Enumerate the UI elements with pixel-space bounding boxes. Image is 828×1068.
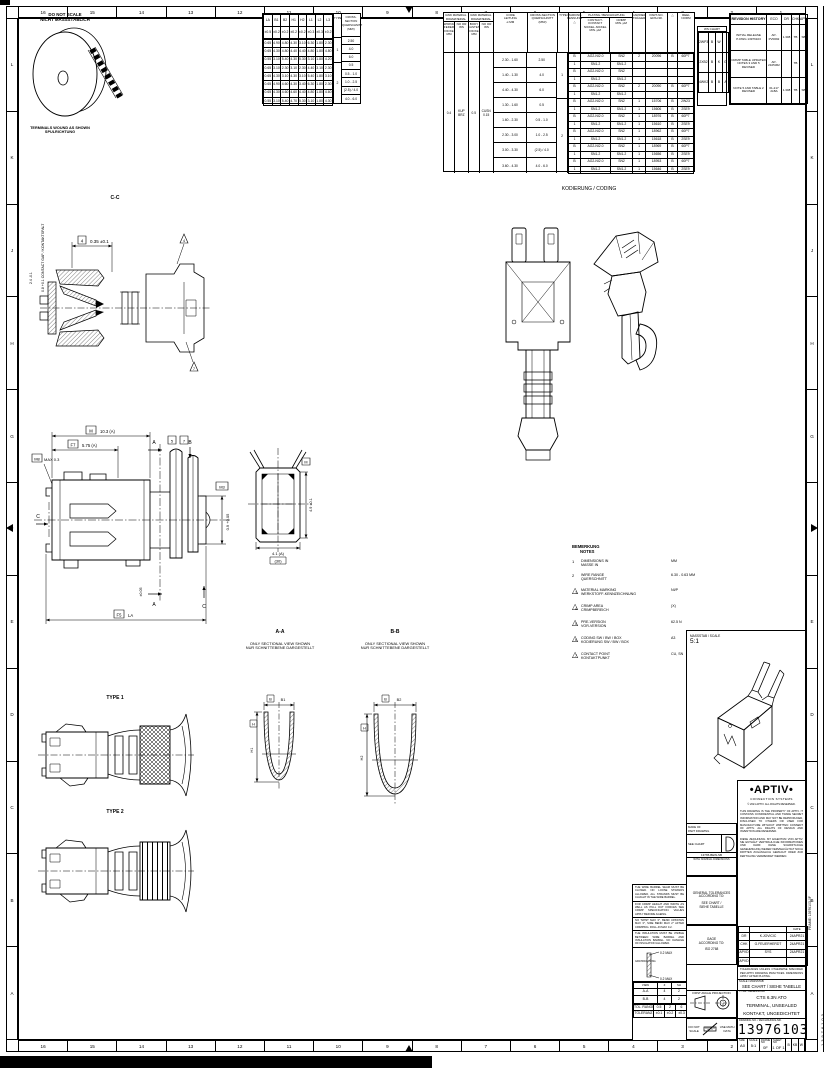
burr-sketch: 0.2 MAX 0.2 MAX bbox=[635, 949, 685, 981]
list-item: 5 bbox=[560, 1041, 609, 1051]
list-item: J bbox=[807, 205, 817, 298]
table-cell: SN1.2 bbox=[611, 61, 633, 69]
list-item: 1.0 - 2.5 bbox=[342, 78, 360, 86]
list-item: D bbox=[807, 669, 817, 762]
centering-mark-left bbox=[6, 524, 13, 532]
table-cell: 24APR21 bbox=[787, 933, 808, 941]
table-row: BAG2-NI2.0SN2220096B60P7 bbox=[569, 54, 694, 62]
table-cell: 15610 bbox=[646, 121, 668, 129]
table-row: INITIAL RELEASE P-DWG 13976103AP- PV0092… bbox=[731, 25, 808, 51]
table-cell: SN1.2 bbox=[581, 106, 611, 114]
spring-material: KUP BRZ bbox=[455, 53, 469, 173]
table-cell: AG2-NI2.0 bbox=[581, 99, 611, 107]
table-cell bbox=[678, 69, 694, 77]
table-cell: SN1.2 bbox=[581, 121, 611, 129]
table-cell: 0.65 bbox=[264, 81, 273, 89]
notes-title-en: NOTES bbox=[580, 549, 707, 554]
table-cell bbox=[646, 91, 668, 99]
table-cell: SN2 bbox=[611, 129, 633, 137]
svg-text:H1: H1 bbox=[250, 748, 254, 753]
table-row: TOLERANZ±0.1±0.2±0.3 bbox=[634, 1011, 688, 1018]
cs-values-2: 2.504.06.00.50.5 - 1.01.0 - 2.5(2.5) / 4… bbox=[527, 53, 557, 173]
list-item: 12 bbox=[216, 7, 265, 17]
dimension-table-header: LAB1B2H1H2L1L2L3±0.5±0.2±0.2±0.2±0.2±0.3… bbox=[263, 14, 333, 39]
table-cell: B bbox=[668, 166, 678, 174]
rev-col-eco: ECO bbox=[767, 15, 782, 25]
list-item: 1.30 - 1.60 bbox=[494, 98, 527, 113]
crimp-section-aa: B B1 H H1 bbox=[250, 694, 308, 802]
list-item: 4.40 - 4.30 bbox=[494, 83, 527, 98]
list-item: 10 bbox=[314, 1041, 363, 1051]
size-cell: SIZEA0 bbox=[738, 1039, 748, 1051]
reel-drawing bbox=[24, 26, 128, 124]
note-value: MM bbox=[671, 559, 677, 563]
table-row: BAG2-NI2.0SN2 bbox=[569, 69, 694, 77]
table-cell: 4.30 bbox=[289, 73, 298, 81]
table-cell: L2 bbox=[315, 15, 324, 27]
front-view: M 4.9 ±0.1 4.1 (A) (30) bbox=[246, 446, 314, 564]
table-cell: G.FEUERHERDT bbox=[750, 941, 787, 949]
table-cell: 5.30 bbox=[298, 56, 307, 64]
svg-text:5.75 (A): 5.75 (A) bbox=[82, 443, 98, 448]
note-item-1: 1 DIMENSIONS INMASSE IN MM bbox=[572, 559, 707, 568]
table-cell: SN2 bbox=[611, 54, 633, 62]
svg-text:M8: M8 bbox=[34, 457, 40, 462]
table-row: 2WP3BW bbox=[699, 33, 729, 53]
table-row: 0.654.304.804.404.404.801.804.80 bbox=[264, 48, 333, 56]
svg-text:B1: B1 bbox=[281, 698, 286, 702]
table-cell bbox=[800, 51, 808, 77]
process-note-1: THE WIRE BARREL SEAM MUST BE CLOSED. NO … bbox=[633, 885, 686, 902]
note-value: (X) bbox=[671, 604, 676, 608]
list-item: 6.0 bbox=[527, 83, 556, 98]
svg-text:±0.05: ±0.05 bbox=[139, 588, 143, 597]
table-cell: 1 bbox=[569, 91, 581, 99]
table-cell: 18969 bbox=[646, 144, 668, 152]
table-cell: 1.80 bbox=[315, 40, 324, 48]
legal-text-en: THIS DRAWING IS THE PROPERTY OF APTIV. I… bbox=[738, 809, 805, 835]
aa-note-de: NUR SCHNITTEBENE DARGESTELLT bbox=[232, 646, 328, 650]
section-aa-note: ONLY SECTIONAL VIEW SHOWN NUR SCHNITTEBE… bbox=[232, 642, 328, 651]
table-cell: SN1.2 bbox=[581, 151, 611, 159]
doc-vertical-note: 13976103 bbox=[820, 1012, 825, 1046]
table-cell: 5.40 bbox=[281, 56, 290, 64]
table-cell: 5.40 bbox=[281, 97, 290, 105]
table-cell: 4.90 bbox=[272, 81, 281, 89]
type2-view bbox=[36, 820, 196, 920]
table-cell: SN2 bbox=[611, 159, 633, 167]
table-cell bbox=[668, 76, 678, 84]
table-row: BAG2-NI2.0SN2220090B60P7 bbox=[569, 84, 694, 92]
table-cell: A bbox=[723, 73, 729, 93]
table-cell: B bbox=[709, 53, 716, 73]
table-row: 1SN1.2SN1.2115618B2SE9 bbox=[569, 136, 694, 144]
svg-text:(30): (30) bbox=[274, 559, 282, 564]
table-cell bbox=[633, 76, 646, 84]
table-cell: 4.30 bbox=[324, 97, 333, 105]
list-item: 1.40 - 1.30 bbox=[494, 68, 527, 83]
table-cell: TOLERANZ bbox=[634, 1011, 654, 1018]
signature-table: DATE DRK.JOVICIC24APR21CHKG.FEUERHERDT24… bbox=[738, 926, 808, 966]
table-cell: ±0.2 bbox=[272, 27, 281, 39]
dimension-table-values: LAB1B2H1H2L1L2L3±0.5±0.2±0.2±0.2±0.2±0.3… bbox=[263, 14, 333, 103]
svg-text:0.9 +0.05: 0.9 +0.05 bbox=[225, 513, 230, 531]
ws-chart-table: 2WP3BW2XB2BKG4WK2BBA bbox=[698, 32, 729, 93]
flag-header: △ bbox=[668, 13, 678, 52]
list-item: G bbox=[807, 390, 817, 483]
table-cell: AG2-NI2.0 bbox=[581, 144, 611, 152]
table-row: BAG2-NI2.0SN2118962B60P7 bbox=[569, 129, 694, 137]
table-cell: ±0.3 bbox=[315, 27, 324, 39]
centering-mark-right bbox=[811, 524, 818, 532]
rev-col-chk: CHK bbox=[792, 15, 800, 25]
extra-cells: BKBW bbox=[786, 1039, 805, 1051]
table-row: CRIMP TABLE UPDATED NOTES 3 AND 5 REVISE… bbox=[731, 51, 808, 77]
part-no-header: PART-NO. EDS-NR. bbox=[646, 13, 668, 52]
wound-note: TERMINALS WOUND AS SHOWN SPULRICHTUNG bbox=[22, 126, 98, 135]
table-cell: 1 bbox=[633, 114, 646, 122]
list-item: 2.50 bbox=[342, 37, 360, 45]
table-cell: 1 bbox=[633, 106, 646, 114]
material-table: RAW MATERIAL ROHMATERIAL SPRING FEDER DI… bbox=[443, 12, 695, 172]
list-item: 4 bbox=[609, 1041, 658, 1051]
table-cell: 4.80 bbox=[307, 48, 316, 56]
table-row: APVD bbox=[739, 957, 808, 965]
table-cell: 1.80 bbox=[315, 81, 324, 89]
table-row: 1SN1.2SN1.2 bbox=[569, 76, 694, 84]
table-cell: 1.80 bbox=[315, 89, 324, 97]
table-cell: L3 bbox=[324, 15, 333, 27]
table-cell bbox=[678, 91, 694, 99]
type2-title: TYPE 2 bbox=[90, 810, 140, 816]
table-cell: 4.60 bbox=[289, 89, 298, 97]
list-item: (2.5) / 4.0 bbox=[527, 143, 556, 158]
table-cell: APVD bbox=[739, 957, 750, 965]
general-tolerances-block: GENERAL TOLERANCES ACCORDING TO: SEE CHA… bbox=[686, 876, 737, 925]
do-not-scale-block: DO NOTSCALE USE MATHDATA bbox=[686, 1018, 737, 1040]
table-cell: B bbox=[569, 99, 581, 107]
table-cell: 1 bbox=[633, 144, 646, 152]
drawing-title-1: CTS 6.3N ATO bbox=[738, 995, 805, 1000]
table-cell: B bbox=[668, 121, 678, 129]
table-cell: 2 bbox=[633, 54, 646, 62]
type-col-2: 1 2 bbox=[557, 53, 568, 173]
svg-text:B: B bbox=[188, 440, 192, 446]
table-row: 1SN1.2SN1.2115610B2SE9 bbox=[569, 121, 694, 129]
table-cell: 1 bbox=[569, 76, 581, 84]
table-cell: 0.55 bbox=[264, 56, 273, 64]
table-cell bbox=[633, 61, 646, 69]
note-item-3: △3 MATERIAL MARKINGWERKSTOFF-KENNZEICHNU… bbox=[572, 588, 707, 597]
table-cell: 2XB2 bbox=[699, 53, 709, 73]
burr-caption: GRATRICHTUNG bbox=[635, 961, 645, 964]
table-cell: SN2 bbox=[611, 114, 633, 122]
list-item: (2.5) / 4.0 bbox=[342, 87, 360, 95]
note-value: CU, SN bbox=[671, 652, 683, 656]
cross-section-header: CROSS-SECTION QUERSCHNITT (MM²) bbox=[528, 13, 558, 52]
table-cell: AG2-NI2.0 bbox=[581, 159, 611, 167]
triangle-flag-icon: △6 bbox=[572, 636, 581, 644]
table-cell: 2 bbox=[672, 996, 687, 1004]
burr-mini-table: VIEW Z SH A-A42B-B42 bbox=[633, 982, 687, 1004]
raw-material-group-1: RAW MATERIAL ROHMATERIAL SPRING FEDER DI… bbox=[444, 13, 469, 52]
table-cell: 3.10 bbox=[315, 64, 324, 72]
tolerance-foot-table: TOL. RANGE0.526TOLERANZ±0.1±0.2±0.3 bbox=[633, 1004, 688, 1018]
table-cell: L1 bbox=[307, 15, 316, 27]
table-cell: H2 bbox=[298, 15, 307, 27]
table-cell: B bbox=[668, 54, 678, 62]
svg-text:F5: F5 bbox=[117, 613, 123, 618]
table-cell: 2 bbox=[672, 988, 687, 996]
table-cell: 1.80 bbox=[315, 48, 324, 56]
table-cell: 1 bbox=[569, 166, 581, 174]
list-item: H bbox=[807, 297, 817, 390]
table-cell: B bbox=[668, 106, 678, 114]
table-row: CHKG.FEUERHERDT24APR21 bbox=[739, 941, 808, 949]
table-cell: 4.30 bbox=[289, 40, 298, 48]
list-item: 0.5 - 1.0 bbox=[342, 70, 360, 78]
table-cell: 2 bbox=[633, 84, 646, 92]
table-cell: 1 bbox=[569, 151, 581, 159]
table-cell: ±0.1 bbox=[654, 1011, 665, 1018]
table-cell: 3.10 bbox=[307, 97, 316, 105]
list-item: D bbox=[7, 669, 17, 762]
table-cell: 24APR21 bbox=[787, 949, 808, 957]
table-cell: 1 bbox=[633, 166, 646, 174]
engineering-drawing-sheet: { "sheet": { "zones_h": ["16","15","14",… bbox=[0, 0, 828, 1068]
table-cell: 1 bbox=[569, 61, 581, 69]
table-cell: 01-217 2LBA bbox=[767, 77, 782, 103]
rev-col-apvd: APVD bbox=[800, 15, 808, 25]
table-cell: 1.80 bbox=[315, 73, 324, 81]
table-cell: 3.10 bbox=[298, 73, 307, 81]
list-item: 13 bbox=[167, 1041, 216, 1051]
centering-mark-bottom bbox=[405, 1045, 413, 1052]
table-row: DRK.JOVICIC24APR21 bbox=[739, 933, 808, 941]
table-cell bbox=[668, 91, 678, 99]
table-cell: 0.65 bbox=[264, 48, 273, 56]
table-cell: SN1.2 bbox=[581, 91, 611, 99]
list-item: G bbox=[7, 390, 17, 483]
table-cell: 4.40 bbox=[298, 48, 307, 56]
table-row: 0.654.303.104.303.105.401.803.10 bbox=[264, 73, 333, 81]
table-cell: 2SE9 bbox=[678, 166, 694, 174]
core-values: 2.30 - 1.601.40 - 1.304.40 - 4.301.30 - … bbox=[494, 53, 528, 173]
svg-text:H2: H2 bbox=[360, 756, 364, 761]
table-cell: 4.40 bbox=[298, 89, 307, 97]
list-item: 11 bbox=[265, 1041, 314, 1051]
list-item: 3 bbox=[658, 1041, 707, 1051]
dimension-table-body: 0.654.904.804.303.106.301.802.300.654.30… bbox=[263, 39, 333, 106]
table-cell: 2SE9 bbox=[678, 151, 694, 159]
section-bb-note: ONLY SECTIONAL VIEW SHOWN NUR SCHNITTEBE… bbox=[347, 642, 443, 651]
aptiv-logo: •APTIV• bbox=[738, 784, 805, 796]
logo-subtitle: CONNECTION SYSTEMS bbox=[738, 797, 805, 801]
table-cell: SN1.2 bbox=[581, 61, 611, 69]
main-side-view: A A C C B M 10.3 (A) F7 5.75 (A) M8 MAX … bbox=[30, 392, 235, 632]
table-cell bbox=[668, 61, 678, 69]
table-cell: ±0.2 bbox=[289, 27, 298, 39]
list-item: 14 bbox=[117, 1041, 166, 1051]
type1-view bbox=[36, 706, 196, 802]
table-cell: 24APR21 bbox=[787, 941, 808, 949]
table-cell: SN1.2 bbox=[611, 136, 633, 144]
svg-text:A: A bbox=[152, 440, 156, 446]
note-item-4: △4 CRIMP AREACRIMPBEREICH (X) bbox=[572, 604, 707, 613]
list-item: 2.30 - 1.60 bbox=[494, 53, 527, 68]
svg-text:4: 4 bbox=[81, 239, 84, 244]
svg-text:F7: F7 bbox=[71, 443, 77, 448]
table-cell: 1 bbox=[633, 151, 646, 159]
svg-text:MAX 0.3: MAX 0.3 bbox=[44, 457, 60, 462]
table-cell: SN1.2 bbox=[581, 136, 611, 144]
first-angle-projection-icon bbox=[688, 995, 736, 1011]
table-cell: INITIAL RELEASE P-DWG 13976103 bbox=[731, 25, 767, 51]
svg-text:H: H bbox=[363, 727, 366, 731]
made-of-see-chart: SEE CHART bbox=[687, 835, 722, 852]
table-cell: B bbox=[668, 129, 678, 137]
list-item: E bbox=[807, 576, 817, 669]
table-cell: 4.40 bbox=[289, 48, 298, 56]
table-row: 0.553.105.404.305.303.101.804.20 bbox=[264, 56, 333, 64]
svg-text:7: 7 bbox=[193, 367, 195, 371]
svg-text:5: 5 bbox=[171, 439, 174, 444]
table-cell: 4.80 bbox=[324, 48, 333, 56]
table-row: BAG2-NI2.0SN2118969B60P7 bbox=[569, 144, 694, 152]
plating-group: PLATING / BESCHICHTUNG CONTACT-KONTAKT N… bbox=[581, 13, 633, 52]
svg-text:A: A bbox=[152, 602, 156, 608]
list-item: 0.5 bbox=[527, 98, 556, 113]
table-cell: AP- 2105362 bbox=[767, 51, 782, 77]
table-cell: 2WP3 bbox=[699, 33, 709, 53]
cs-values: 2.504.06.00.50.5 - 1.01.0 - 2.5(2.5) / 4… bbox=[342, 37, 360, 103]
crimp-section-bb: B B2 H H2 bbox=[362, 694, 428, 816]
table-cell: TB bbox=[792, 25, 800, 51]
table-cell: LA bbox=[264, 15, 273, 27]
table-cell: 60P7 bbox=[678, 84, 694, 92]
section-cc-title: C-C bbox=[100, 196, 130, 202]
table-cell: SN1.2 bbox=[581, 166, 611, 174]
table-cell: 4.60 bbox=[281, 81, 290, 89]
sheet-cell: SHEET NO1 OF 1 bbox=[772, 1039, 786, 1051]
list-item: K bbox=[7, 112, 17, 205]
table-cell: 3.40 bbox=[298, 81, 307, 89]
table-cell: 5.40 bbox=[307, 73, 316, 81]
list-item: J bbox=[7, 205, 17, 298]
footer-row: SIZEA0 SCALE5:1 FRAME NO0F SHEET NO1 OF … bbox=[738, 1038, 805, 1051]
table-cell: SN2 bbox=[611, 69, 633, 77]
table-row: 2XB2BKG bbox=[699, 53, 729, 73]
table-cell: 0.65 bbox=[264, 40, 273, 48]
note-number: 1 bbox=[572, 559, 581, 564]
list-item: 3.60 - 4.30 bbox=[494, 158, 527, 173]
type-2-cell: 2 bbox=[334, 63, 341, 103]
list-item: K bbox=[807, 112, 817, 205]
list-item: W bbox=[799, 1039, 805, 1051]
divider-h-630 bbox=[686, 630, 806, 631]
list-item: 13 bbox=[167, 7, 216, 17]
table-cell: 4.70 bbox=[289, 97, 298, 105]
table-cell: SN1.2 bbox=[611, 121, 633, 129]
table-cell: 3.10 bbox=[272, 56, 281, 64]
table-cell: 3.10 bbox=[281, 73, 290, 81]
table-cell: ±0.2 bbox=[298, 27, 307, 39]
table-cell: B bbox=[569, 84, 581, 92]
scale-block-value: 5:1 bbox=[690, 638, 720, 645]
svg-text:B: B bbox=[384, 698, 387, 702]
table-cell bbox=[668, 69, 678, 77]
list-item: C bbox=[807, 762, 817, 855]
svg-text:7: 7 bbox=[183, 439, 186, 444]
rev-col-dr: DR bbox=[782, 15, 792, 25]
table-cell: B-B bbox=[634, 996, 658, 1004]
table-cell: B bbox=[569, 69, 581, 77]
table-cell: 4.30 bbox=[272, 73, 281, 81]
table-cell: K bbox=[716, 53, 723, 73]
table-cell: ±0.3 bbox=[307, 27, 316, 39]
coding-view-2 bbox=[582, 228, 670, 413]
table-cell: 4.40 bbox=[307, 64, 316, 72]
revision-title: REVISION HISTORY bbox=[731, 15, 767, 25]
core-header: CORE LEITUNG ⌀ MM bbox=[494, 13, 528, 52]
svg-text:M3: M3 bbox=[219, 485, 225, 490]
table-row: BAG2-NI2.0SN2118976B60P7 bbox=[569, 114, 694, 122]
list-item: 3.00 - 3.30 bbox=[494, 143, 527, 158]
list-item: 0.5 - 1.0 bbox=[527, 113, 556, 128]
table-cell: 1 bbox=[633, 129, 646, 137]
table-row: ±0.5±0.2±0.2±0.2±0.2±0.3±0.3±0.2 bbox=[264, 27, 333, 39]
table-cell: 1 bbox=[569, 121, 581, 129]
table-cell: TB bbox=[792, 51, 800, 77]
table-row: 0.553.105.404.705.303.101.804.30 bbox=[264, 97, 333, 105]
list-item: 6.0 bbox=[342, 54, 360, 62]
table-cell: SYS bbox=[750, 949, 787, 957]
table-cell: B bbox=[709, 73, 716, 93]
table-cell bbox=[633, 91, 646, 99]
frame-edge-right bbox=[823, 6, 824, 1052]
table-cell: DR bbox=[739, 933, 750, 941]
note-value: 6.30 - 0.63 MM bbox=[671, 573, 695, 577]
list-item: 1.60 - 2.30 bbox=[494, 113, 527, 128]
table-cell: 18953 bbox=[646, 159, 668, 167]
revision-table: REVISION HISTORY ECO DR CHK APVD INITIAL… bbox=[730, 14, 808, 104]
table-row: 0.654.904.604.303.406.301.802.30 bbox=[264, 81, 333, 89]
drawing-number: 13976103 bbox=[738, 1023, 805, 1038]
list-item: A bbox=[7, 947, 17, 1039]
type-1-cell-2: 1 bbox=[557, 53, 567, 99]
copyright-line: © 2021 APTIV. ALL RIGHTS RESERVED. bbox=[738, 803, 805, 806]
table-cell: AG2-NI2.0 bbox=[581, 114, 611, 122]
table-cell: AP- PV0092 bbox=[767, 25, 782, 51]
table-cell: 2.30 bbox=[298, 64, 307, 72]
table-cell: NOTE 5 AND TABLE 2 REVISED bbox=[731, 77, 767, 103]
table-cell: 20096 bbox=[646, 54, 668, 62]
note-number: 2 bbox=[572, 573, 581, 578]
table-cell bbox=[782, 51, 792, 77]
dns-right: USE MATHDATA bbox=[720, 1025, 735, 1033]
table-row: LAB1B2H1H2L1L2L3 bbox=[264, 15, 333, 27]
type-1-cell: 1 bbox=[334, 38, 341, 63]
table-cell bbox=[646, 69, 668, 77]
table-cell: ±0.2 bbox=[665, 1011, 676, 1018]
do-not-scale-de: NICHT MASSSTÄBLICH bbox=[26, 17, 104, 22]
table-cell bbox=[633, 69, 646, 77]
table-cell: B bbox=[569, 144, 581, 152]
table-cell: 4.30 bbox=[289, 81, 298, 89]
table-cell: SN1.2 bbox=[611, 151, 633, 159]
section-aa-title: A-A bbox=[255, 630, 305, 636]
table-cell: 15618 bbox=[646, 136, 668, 144]
